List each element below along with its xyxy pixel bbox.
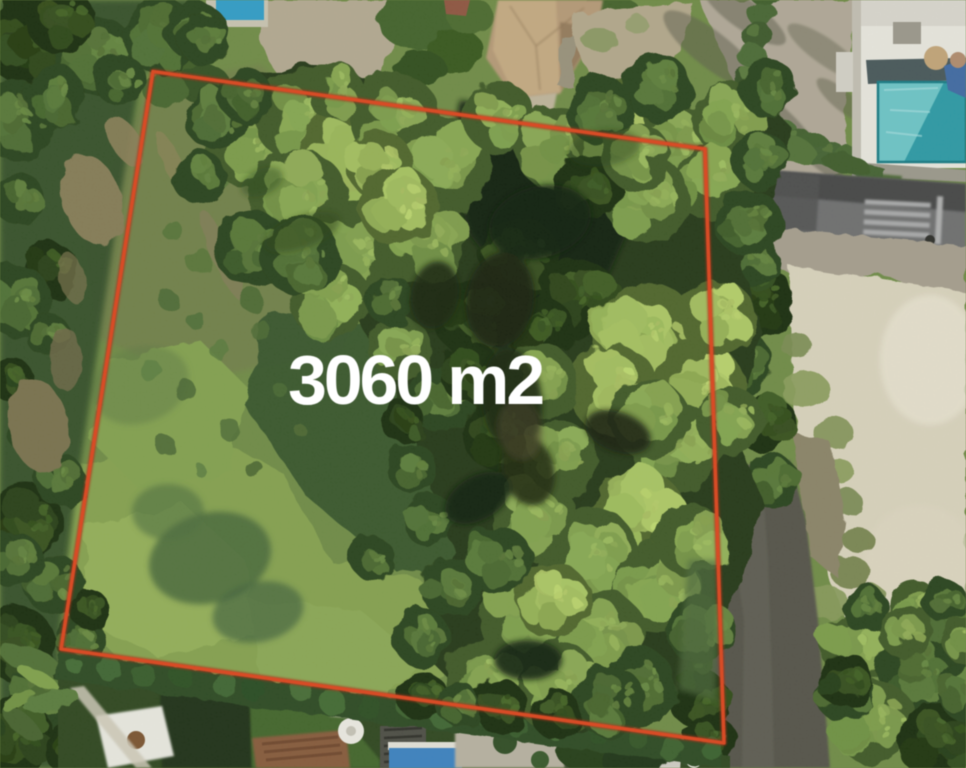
svg-text:3060 m2: 3060 m2: [288, 341, 543, 419]
